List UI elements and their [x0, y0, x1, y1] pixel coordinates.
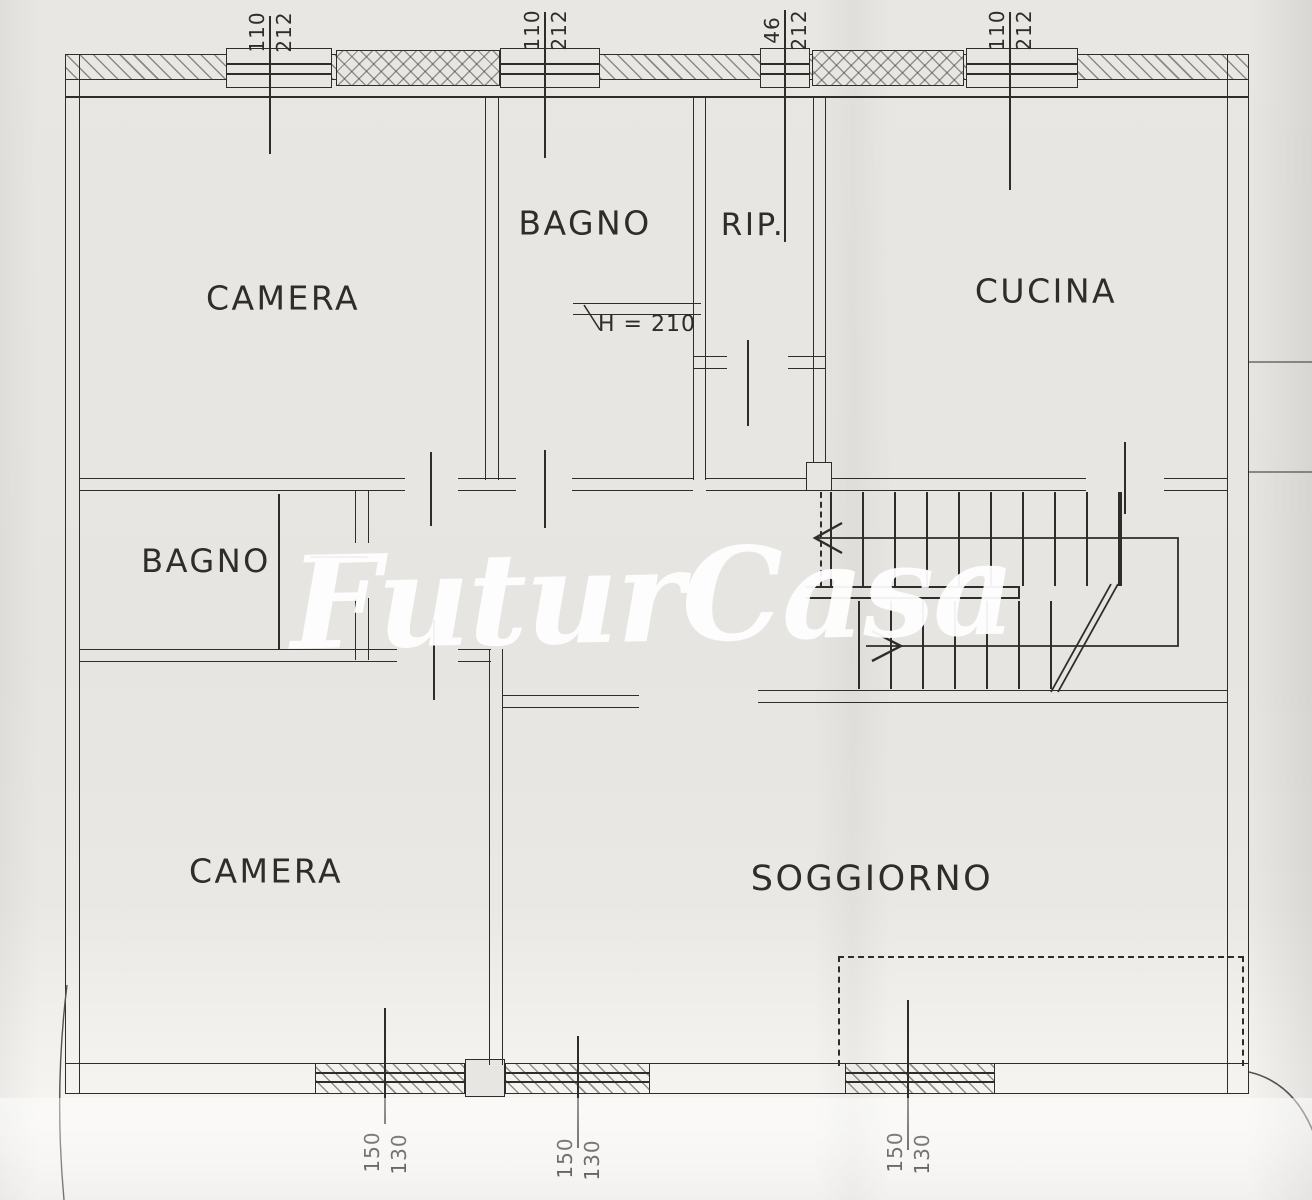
- exterior-wall-left: [65, 54, 80, 1094]
- dim-line-top-1: [269, 16, 271, 154]
- window-sill-line: [227, 73, 331, 75]
- window-sill-line: [967, 63, 1077, 65]
- dim-height: 212: [548, 0, 570, 61]
- door-tick-rip: [747, 340, 749, 426]
- window-sill-line: [501, 63, 599, 65]
- window-bottom-1: [315, 1064, 465, 1093]
- room-label-camera-top: CAMERA: [206, 279, 360, 318]
- exterior-wall-bottom: [65, 1063, 1249, 1094]
- dim-height: 212: [273, 1, 295, 63]
- wall-camera-soggiorno: [489, 649, 503, 1065]
- room-label-bagno-mid: BAGNO: [141, 542, 271, 580]
- watermark: FuturCasa: [289, 514, 1015, 679]
- exterior-wall-top-inner-face: [65, 96, 1248, 98]
- scanned-floor-plan-sheet: 110 212 110 212 46 212 110 212 150 130 1…: [0, 0, 1312, 1200]
- dashed-projection-area: [838, 956, 1244, 1066]
- room-label-rip: RIP.: [721, 207, 785, 243]
- dim-height: 212: [788, 0, 810, 61]
- paper-crease-right: [1249, 362, 1312, 472]
- dim-width: 46: [761, 0, 783, 61]
- room-label-bagno-top: BAGNO: [518, 204, 651, 243]
- exterior-wall-right: [1227, 54, 1249, 1094]
- window-sill-line: [501, 73, 599, 75]
- room-label-camera-bottom: CAMERA: [189, 852, 343, 891]
- wall-corridor-top-2: [458, 478, 516, 491]
- dim-width: 110: [521, 0, 543, 61]
- room-label-cucina: CUCINA: [975, 272, 1117, 311]
- window-sill-line: [316, 1081, 464, 1083]
- dim-line-top-4: [1009, 12, 1011, 190]
- door-tick-cucina: [1124, 442, 1126, 514]
- wall-soggiorno-top: [503, 695, 639, 708]
- wall-rip-bottom-right: [788, 356, 826, 369]
- paper-fold-highlight: [0, 1098, 1312, 1200]
- room-label-soggiorno: SOGGIORNO: [751, 859, 993, 899]
- wall-stair-bottom: [758, 690, 1228, 703]
- top-wall-pier-right: [812, 50, 964, 86]
- wall-rip-bottom-left: [693, 356, 727, 369]
- window-sill-line: [967, 73, 1077, 75]
- door-tick-bagno-top: [544, 450, 546, 528]
- ceiling-height-annotation: H = 210: [598, 312, 696, 337]
- wall-bagno-rip: [693, 96, 706, 480]
- wall-rip-cucina: [813, 96, 826, 478]
- window-sill-line: [846, 1081, 994, 1083]
- wall-cucina-bottom-2: [1164, 478, 1228, 491]
- top-wall-pier-left: [336, 50, 500, 86]
- wall-corridor-top-1: [80, 478, 405, 491]
- wall-camera-bagno: [485, 96, 499, 480]
- bagno-mid-partition: [278, 494, 280, 650]
- door-tick-camera-top: [430, 452, 432, 526]
- window-bottom-3: [845, 1064, 995, 1093]
- window-sill-line: [227, 63, 331, 65]
- window-sill-line: [316, 1072, 464, 1074]
- dim-height: 212: [1013, 0, 1035, 61]
- dim-line-top-2: [544, 12, 546, 158]
- stair-pillar: [806, 462, 832, 491]
- dim-width: 110: [246, 1, 268, 63]
- window-sill-line: [846, 1072, 994, 1074]
- wall-cucina-bottom-1: [706, 478, 1086, 491]
- wall-corridor-top-3: [572, 478, 693, 491]
- dim-width: 110: [986, 0, 1008, 61]
